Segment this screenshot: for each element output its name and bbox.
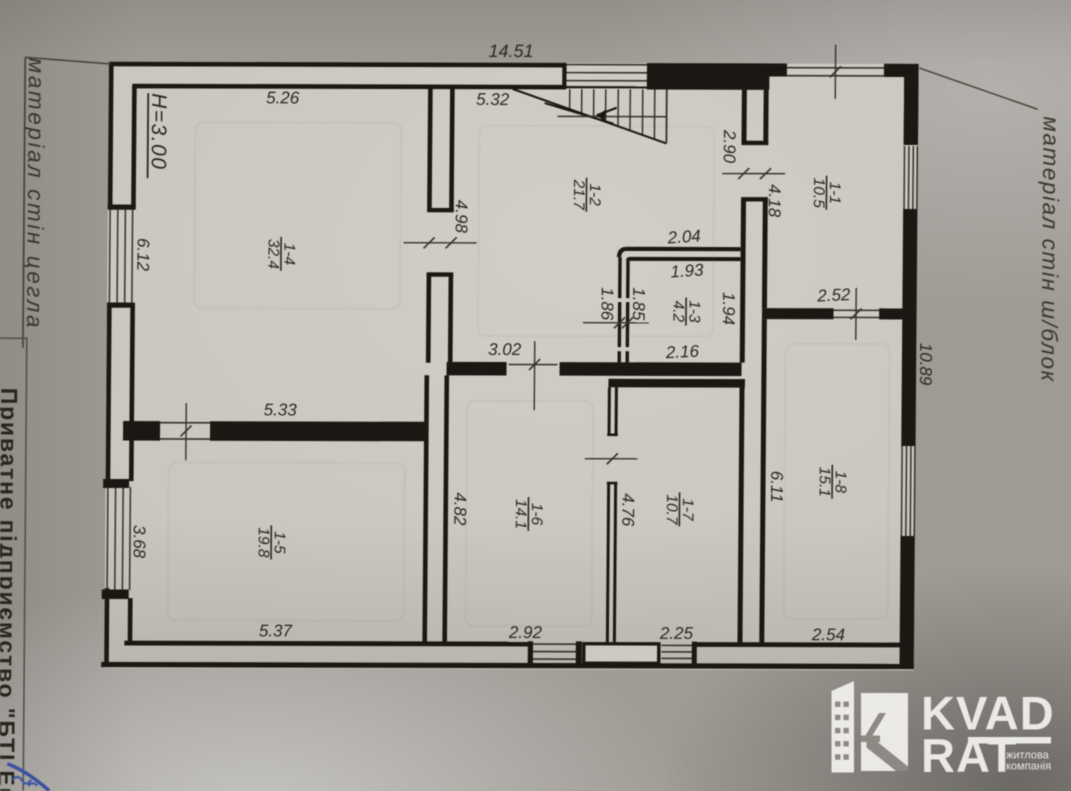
- svg-text:RAT: RAT: [921, 729, 1017, 782]
- svg-text:5.32: 5.32: [476, 90, 510, 109]
- svg-text:1-3: 1-3: [685, 300, 702, 323]
- svg-text:19.8: 19.8: [255, 527, 272, 558]
- svg-text:2.92: 2.92: [508, 623, 543, 642]
- svg-text:2.54: 2.54: [811, 625, 845, 644]
- svg-text:1-7: 1-7: [679, 498, 696, 522]
- svg-text:4.76: 4.76: [618, 493, 637, 527]
- svg-text:1-6: 1-6: [528, 503, 545, 526]
- svg-text:4.82: 4.82: [450, 492, 469, 526]
- svg-text:4.2: 4.2: [669, 301, 686, 323]
- svg-text:4.98: 4.98: [452, 200, 471, 234]
- svg-text:14.1: 14.1: [512, 499, 529, 529]
- svg-text:2.16: 2.16: [664, 342, 699, 363]
- svg-text:14.51: 14.51: [488, 41, 533, 61]
- svg-text:2.04: 2.04: [666, 226, 701, 247]
- svg-text:10.7: 10.7: [663, 494, 680, 526]
- svg-text:6.12: 6.12: [133, 238, 152, 272]
- svg-text:21.7: 21.7: [570, 179, 587, 212]
- svg-text:10.5: 10.5: [810, 178, 827, 209]
- svg-text:1.85: 1.85: [629, 287, 648, 321]
- svg-text:4.18: 4.18: [765, 184, 784, 218]
- svg-text:10.89: 10.89: [916, 343, 935, 386]
- svg-text:5.26: 5.26: [266, 88, 300, 107]
- svg-text:2.52: 2.52: [816, 285, 851, 306]
- svg-text:1-2: 1-2: [586, 183, 603, 206]
- svg-text:32.4: 32.4: [264, 239, 281, 270]
- svg-text:матеріал стін цегла: матеріал стін цегла: [22, 58, 49, 330]
- svg-text:1.86: 1.86: [597, 287, 616, 321]
- svg-text:1-8: 1-8: [832, 471, 849, 494]
- svg-text:1.94: 1.94: [719, 292, 738, 325]
- svg-text:матеріал стін ш/блок: матеріал стін ш/блок: [1036, 116, 1063, 383]
- svg-text:2.25: 2.25: [659, 624, 694, 643]
- svg-text:Н=3.00: Н=3.00: [147, 93, 171, 170]
- svg-text:5.37: 5.37: [259, 621, 293, 640]
- svg-text:Приватне підприємство "БТІ Ек: Приватне підприємство "БТІ Ек: [0, 388, 22, 791]
- svg-text:1.93: 1.93: [670, 260, 705, 281]
- svg-text:3.02: 3.02: [488, 340, 522, 359]
- svg-text:5.33: 5.33: [264, 400, 298, 419]
- svg-text:1-1: 1-1: [826, 182, 843, 204]
- svg-text:15.1: 15.1: [816, 467, 833, 497]
- svg-text:2.90: 2.90: [720, 129, 739, 164]
- svg-text:1-5: 1-5: [271, 531, 288, 554]
- svg-text:компанія: компанія: [1006, 761, 1051, 773]
- svg-text:3.68: 3.68: [130, 525, 149, 559]
- svg-text:6.11: 6.11: [767, 471, 786, 503]
- svg-text:1-4: 1-4: [280, 243, 297, 266]
